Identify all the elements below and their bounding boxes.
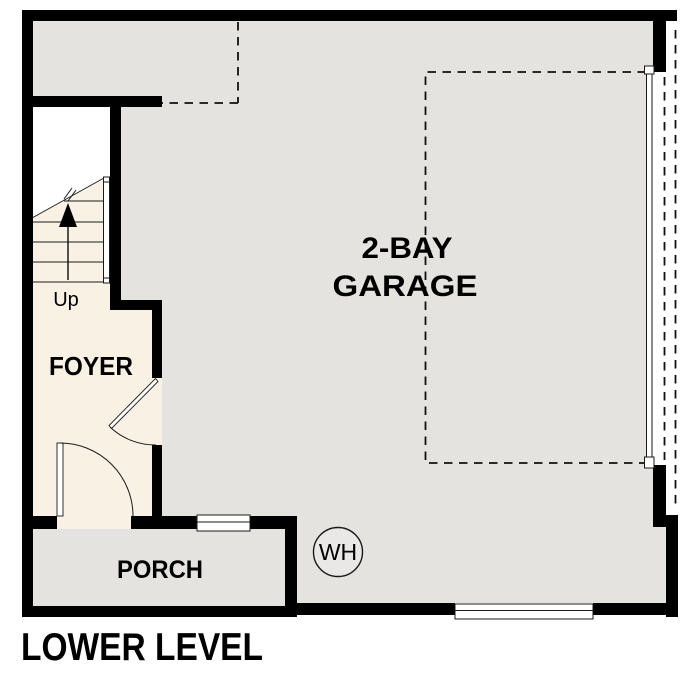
- plan-title: LOWER LEVEL: [21, 626, 263, 669]
- wall-foyer-east-upper: [110, 107, 121, 300]
- stair-stringer: [104, 177, 110, 283]
- water-heater: WH: [314, 528, 363, 577]
- wall-east-mid: [653, 465, 666, 527]
- floor-plan-canvas: WH 2-BAY GARAGE FOYER PORCH Up LOWER LEV…: [0, 0, 687, 687]
- wall-south-foyer-a: [22, 516, 57, 529]
- garage-door-jamb-top: [645, 66, 655, 74]
- wall-foyer-east-a: [152, 310, 162, 378]
- wall-stair-north: [22, 96, 162, 107]
- garage-door-panel: [647, 74, 653, 457]
- wall-garage-south-a: [285, 603, 455, 615]
- front-door-leaf: [57, 443, 63, 516]
- floor-areas: [33, 21, 666, 606]
- wall-porch-south: [22, 606, 297, 617]
- stairs-up-label: Up: [53, 289, 79, 311]
- wall-east-lower: [666, 515, 678, 617]
- wall-south-foyer-c: [250, 516, 297, 529]
- wall-south-foyer-b: [131, 516, 197, 529]
- window-south-large: [455, 604, 593, 619]
- wall-east-upper: [653, 21, 666, 72]
- porch-label: PORCH: [117, 556, 203, 584]
- wall-foyer-east-b: [152, 445, 162, 516]
- interior-door-threshold: [152, 378, 162, 445]
- wall-foyer-jog: [110, 300, 162, 310]
- floor-plan: WH 2-BAY GARAGE FOYER PORCH Up LOWER LEV…: [0, 0, 687, 687]
- garage-label-line2: GARAGE: [333, 270, 478, 303]
- window-south-small: [197, 515, 250, 531]
- garage-label-line1: 2-BAY: [362, 232, 453, 265]
- wall-garage-south-b: [593, 603, 677, 615]
- wall-north: [23, 10, 677, 21]
- water-heater-label: WH: [319, 539, 357, 565]
- foyer-label: FOYER: [49, 351, 133, 381]
- garage-door-jamb-bottom: [645, 457, 655, 468]
